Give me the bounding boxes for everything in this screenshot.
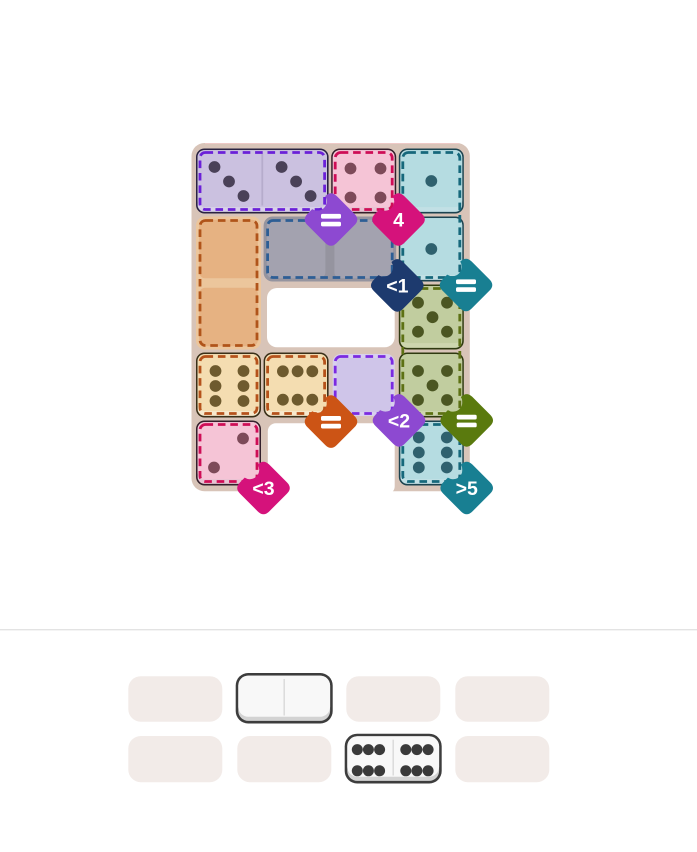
svg-text:<2: <2: [388, 410, 410, 432]
svg-text:<1: <1: [386, 275, 408, 297]
svg-text:<3: <3: [252, 478, 274, 500]
svg-text:4: 4: [393, 210, 404, 232]
svg-text:>5: >5: [456, 478, 478, 500]
